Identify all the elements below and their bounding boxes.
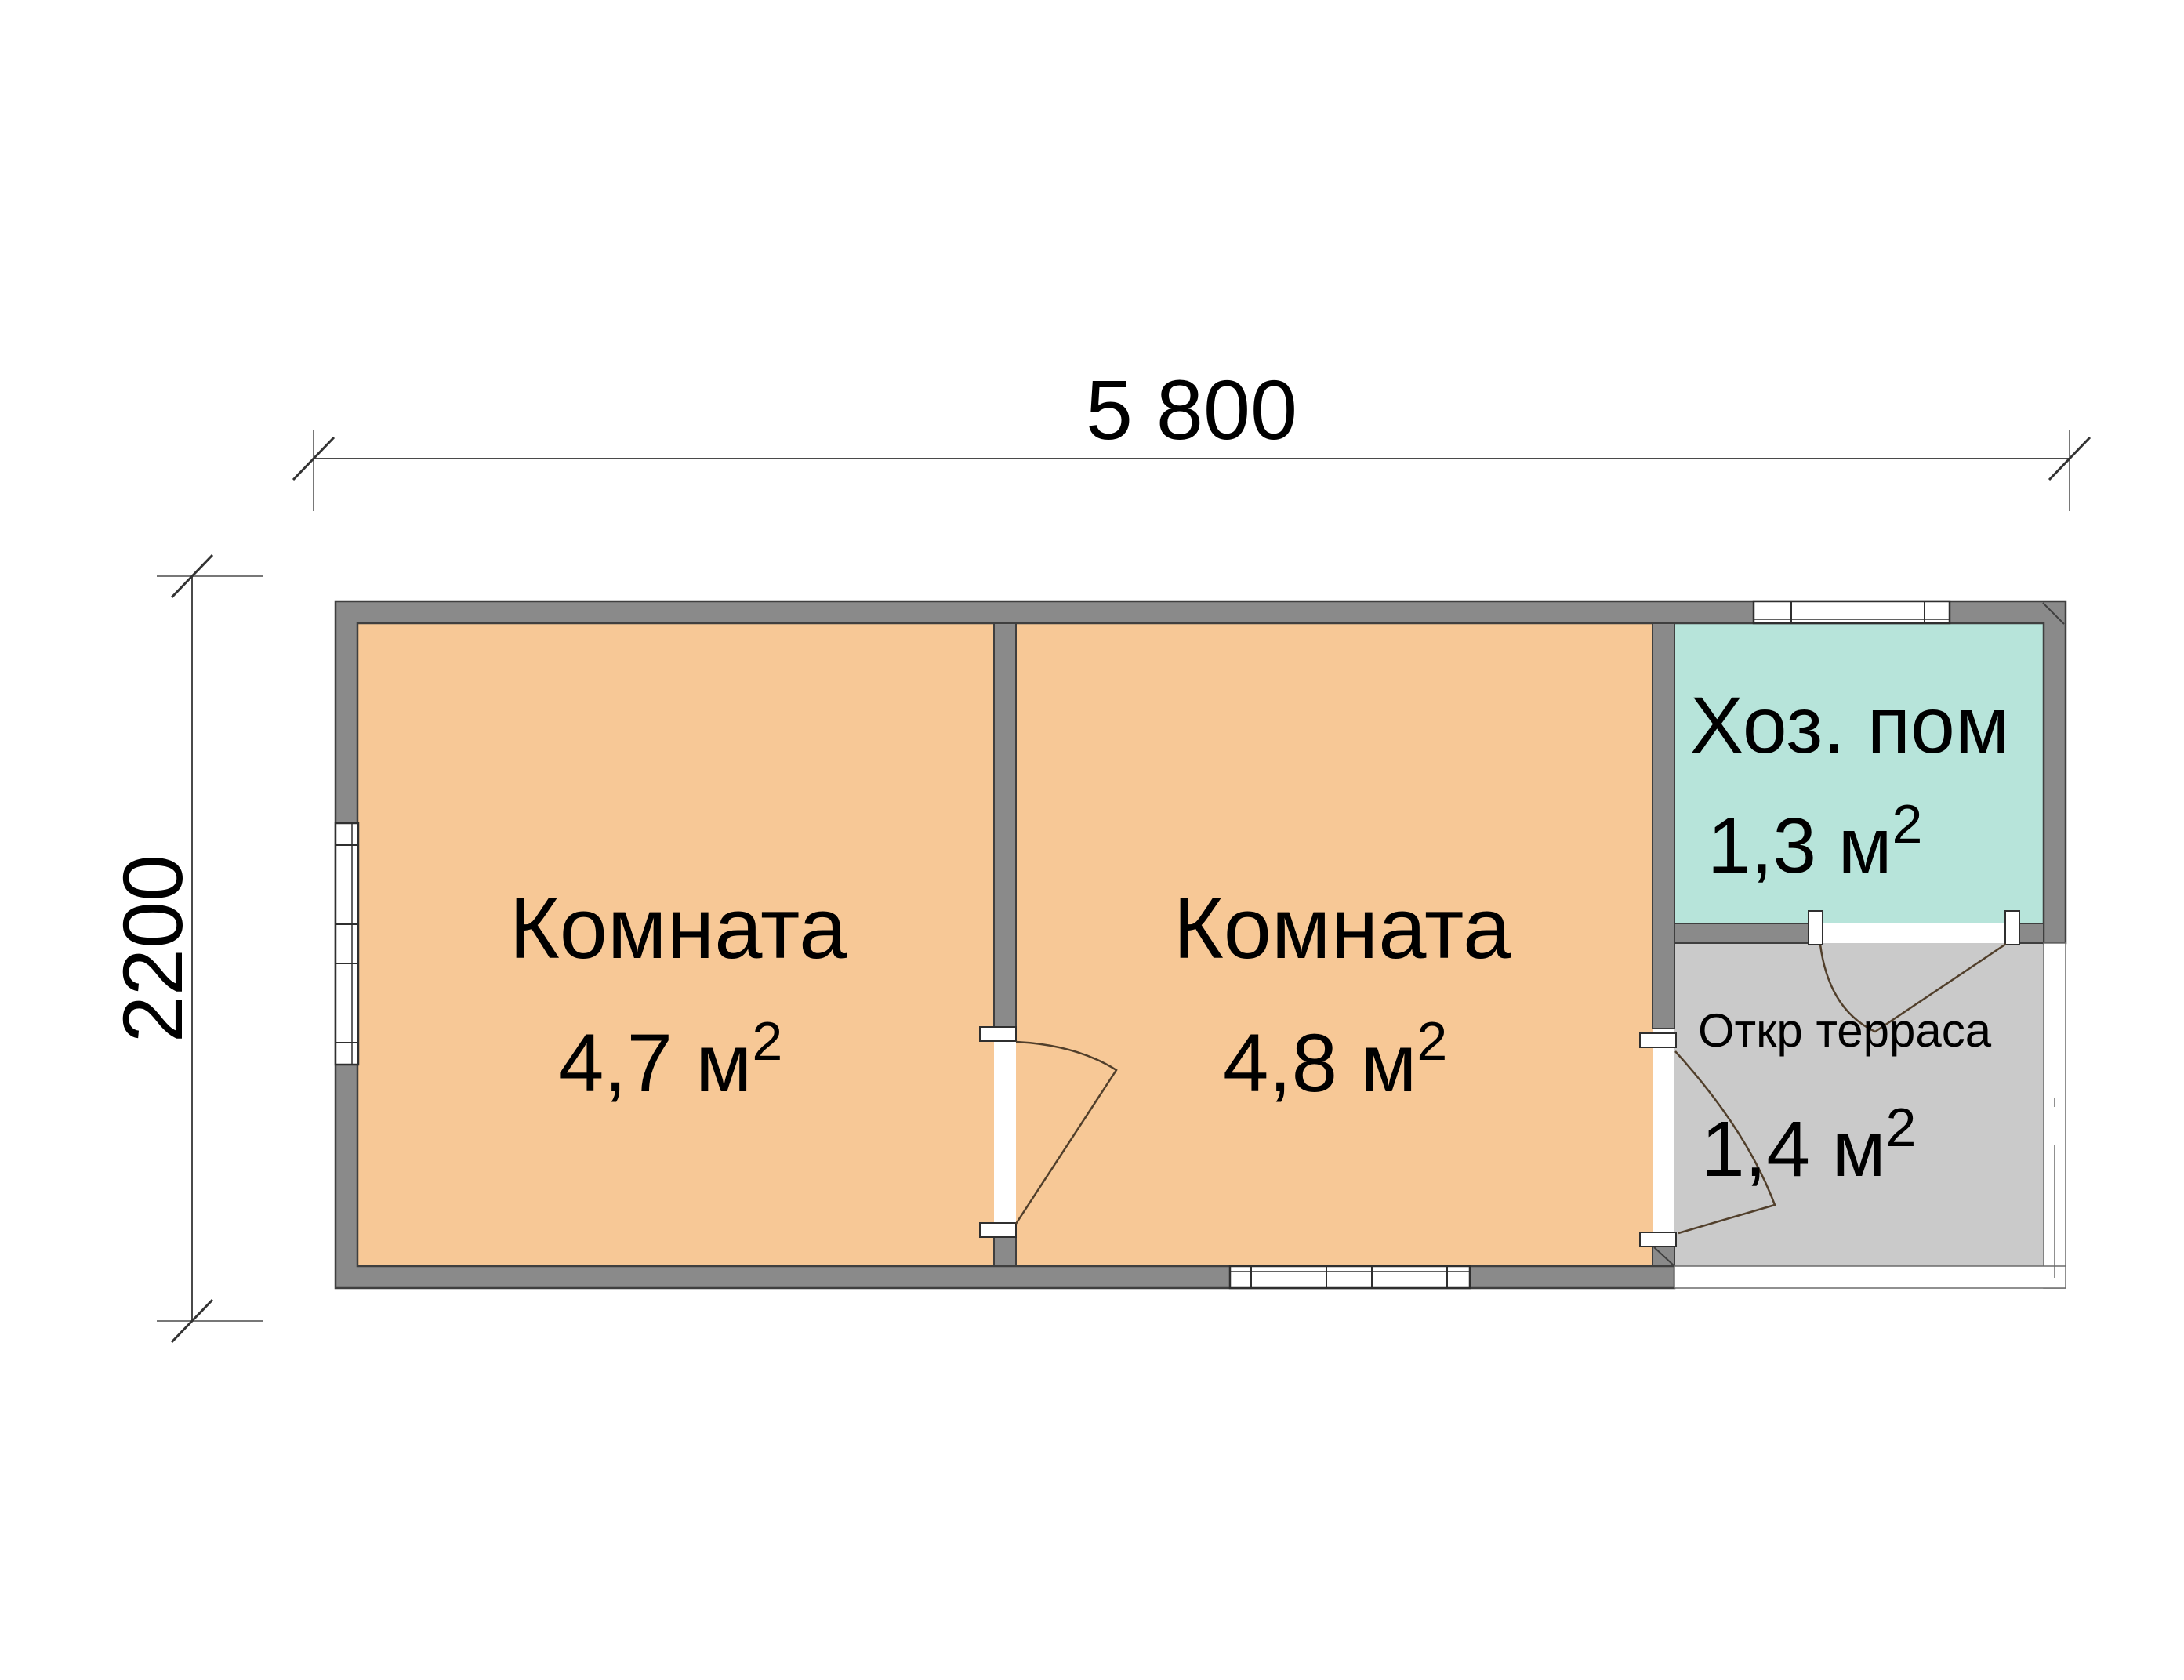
door-partition-jamb-top [980,1027,1016,1041]
window-top-frame [1754,601,1950,623]
window-left [336,823,358,1065]
terrace-name: Откр терраса [1698,1004,1992,1057]
room-1-area: 4,7 м2 [558,1011,782,1109]
utility-bottom-wall-right [2019,923,2044,943]
utility-room-area-sup: 2 [1892,793,1923,855]
room-2-name: Комната [1174,880,1512,977]
room-2-area-value: 4,8 м [1223,1018,1417,1109]
room-2-area: 4,8 м2 [1223,1011,1447,1109]
terrace-area-value: 1,4 м [1701,1105,1886,1193]
partition-wall-upper [994,623,1016,1027]
floor-plan-canvas: 5 800 2200 Комната 4,7 м2 Комната 4,8 м2… [0,0,2184,1680]
room-1-name: Комната [510,880,848,977]
door-terrace-jamb-top [1640,1033,1676,1047]
door-partition-jamb-bottom [980,1223,1016,1237]
utility-bottom-wall-left [1674,923,1809,943]
terrace-area: 1,4 м2 [1701,1097,1916,1193]
door-utility-jamb-right [2005,911,2019,945]
room-1-area-value: 4,7 м [558,1018,752,1109]
terrace-area-sup: 2 [1886,1097,1917,1158]
utility-room-name: Хоз. пом [1690,680,2010,770]
mid-right-wall-upper [1653,623,1674,1029]
window-top [1754,601,1950,623]
utility-room-area: 1,3 м2 [1707,793,1922,890]
door-utility-jamb-left [1809,911,1823,945]
room-1-area-sup: 2 [752,1011,782,1072]
partition-wall-lower-stub [994,1237,1016,1266]
window-bottom [1230,1266,1470,1288]
dim-top-label: 5 800 [1086,362,1297,457]
floor-plan-page: 5 800 2200 Комната 4,7 м2 Комната 4,8 м2… [0,0,2184,1680]
window-left-frame [336,823,358,1065]
door-terrace-jamb-bottom [1640,1232,1676,1246]
utility-room-area-value: 1,3 м [1707,802,1892,890]
dim-left-label: 2200 [105,855,200,1043]
window-bottom-frame [1230,1266,1470,1288]
room-2-area-sup: 2 [1417,1011,1447,1072]
terrace-open-edge-bottom [1674,1266,2066,1288]
